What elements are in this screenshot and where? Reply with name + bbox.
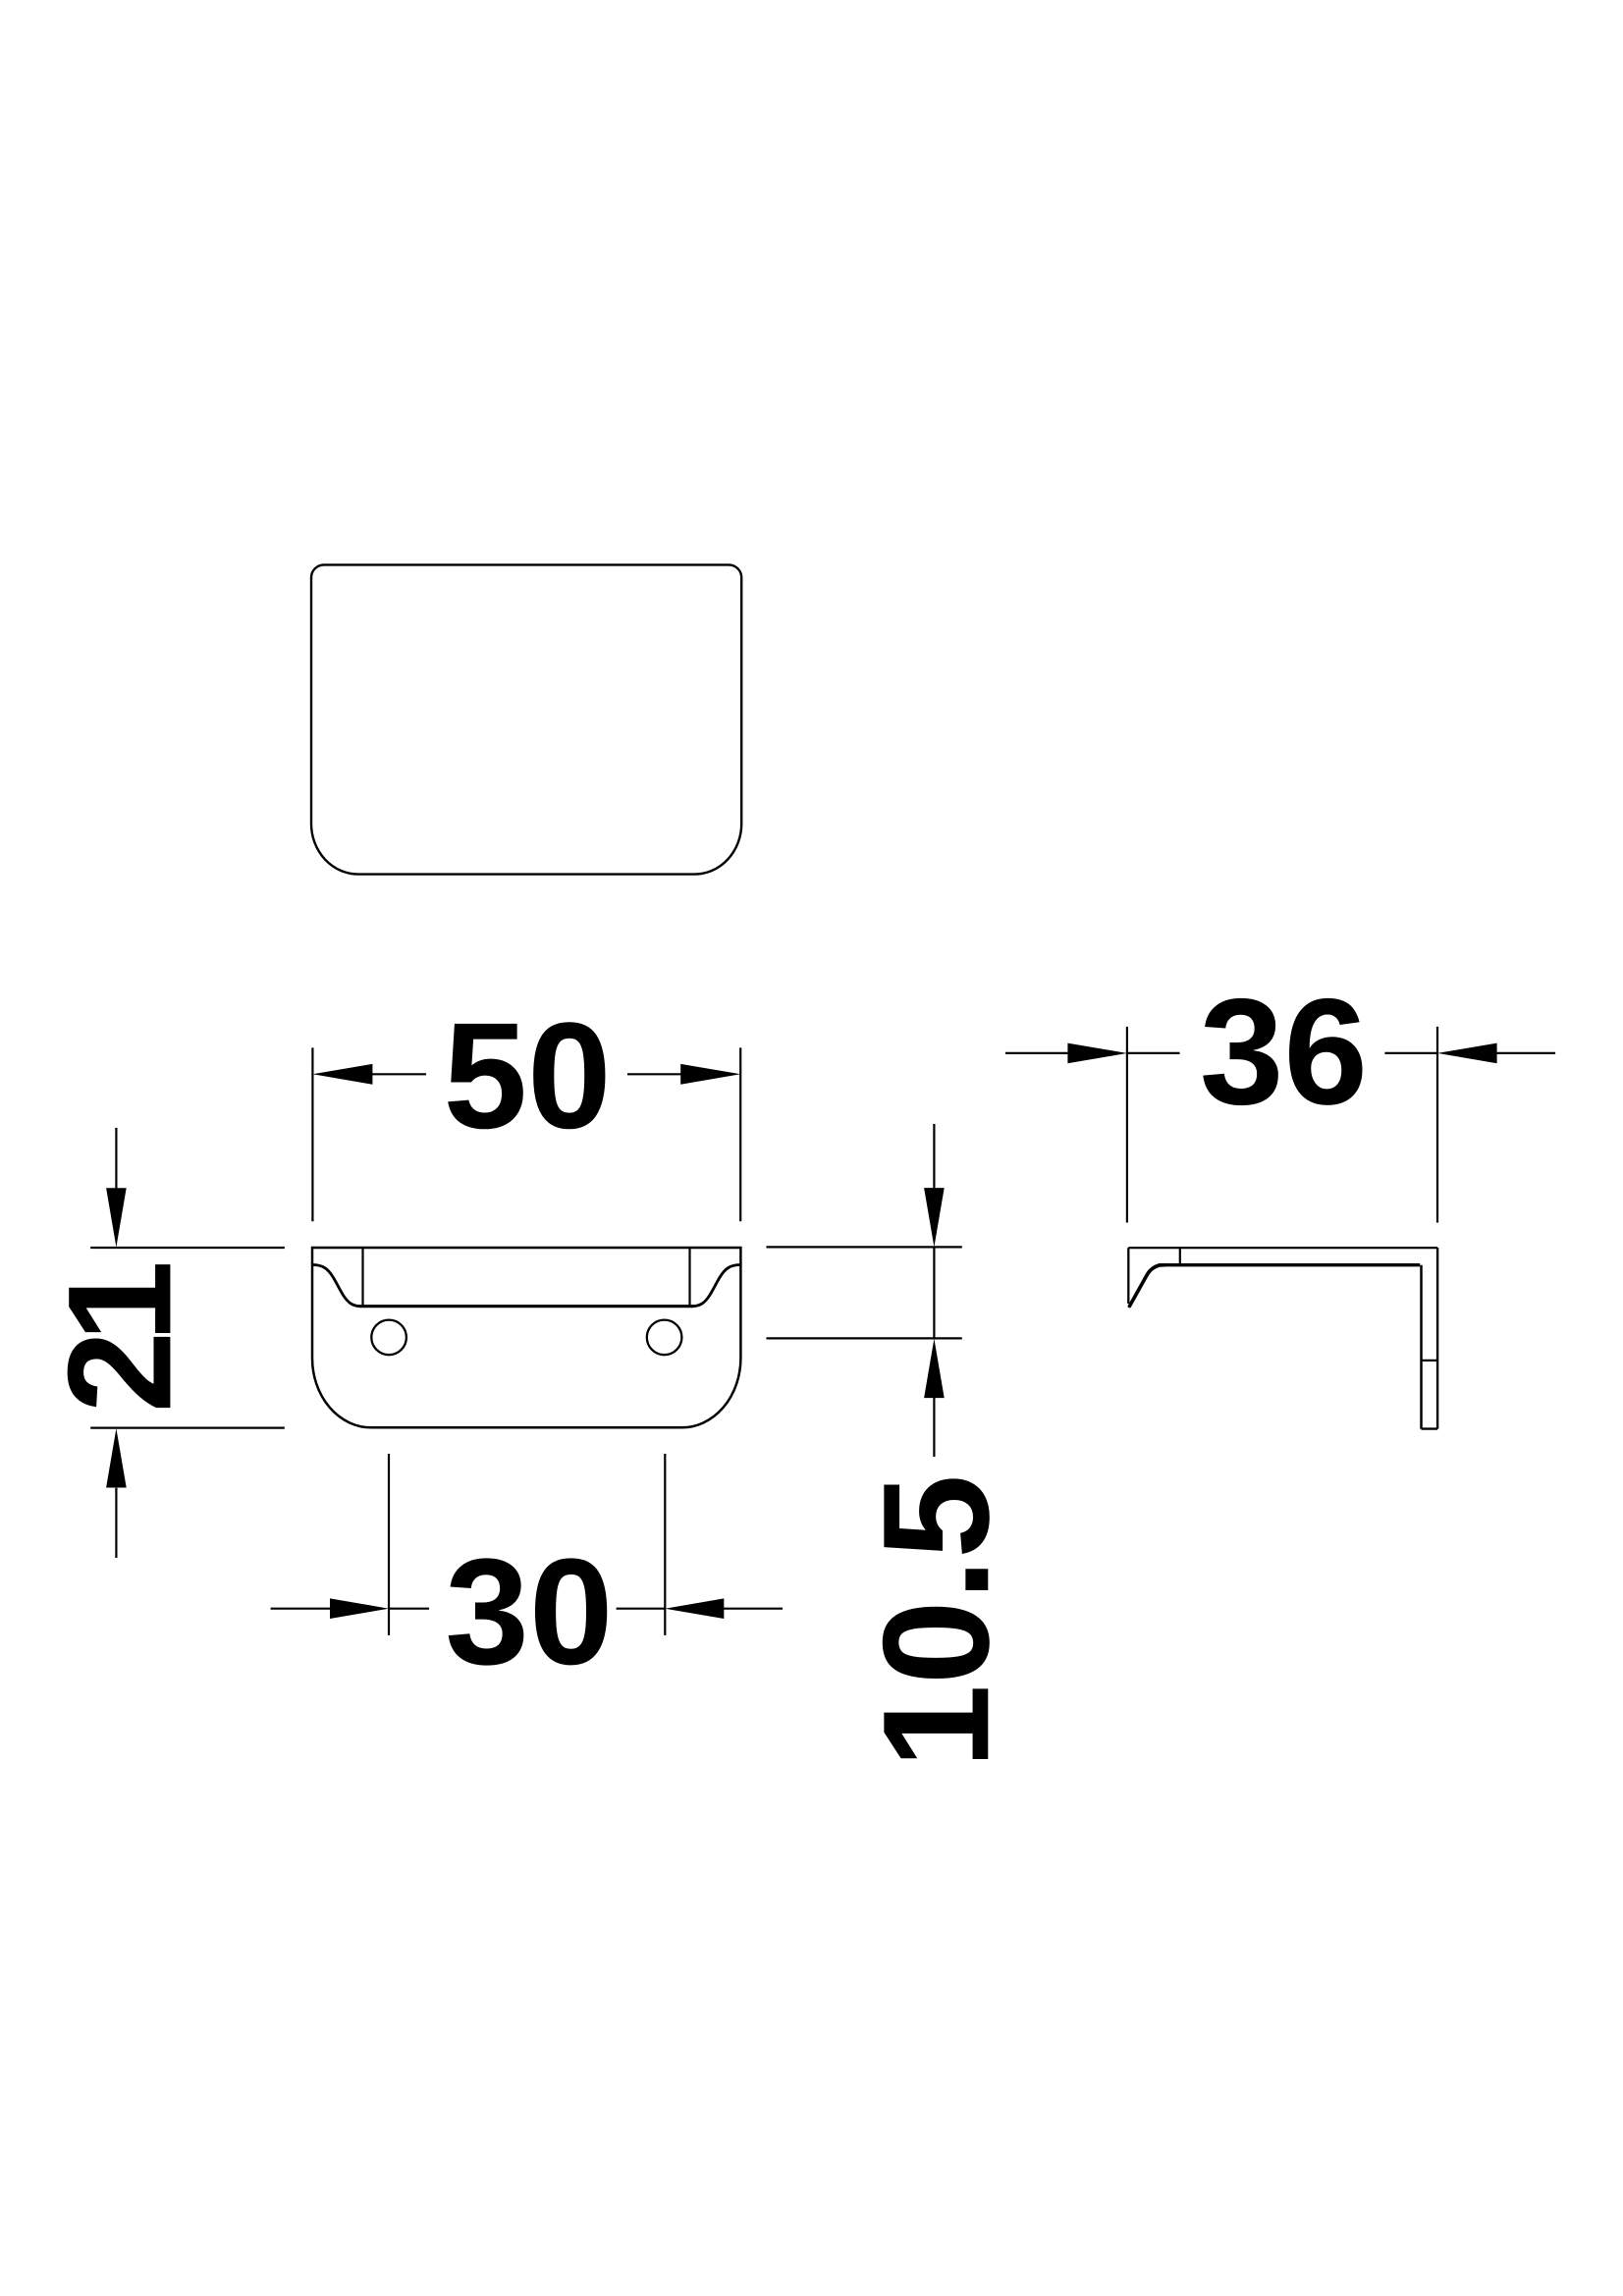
svg-text:30: 30 — [445, 1527, 613, 1696]
svg-text:10.5: 10.5 — [851, 1474, 1020, 1769]
svg-text:36: 36 — [1200, 967, 1368, 1136]
svg-text:50: 50 — [443, 991, 611, 1160]
svg-text:21: 21 — [36, 1263, 201, 1413]
